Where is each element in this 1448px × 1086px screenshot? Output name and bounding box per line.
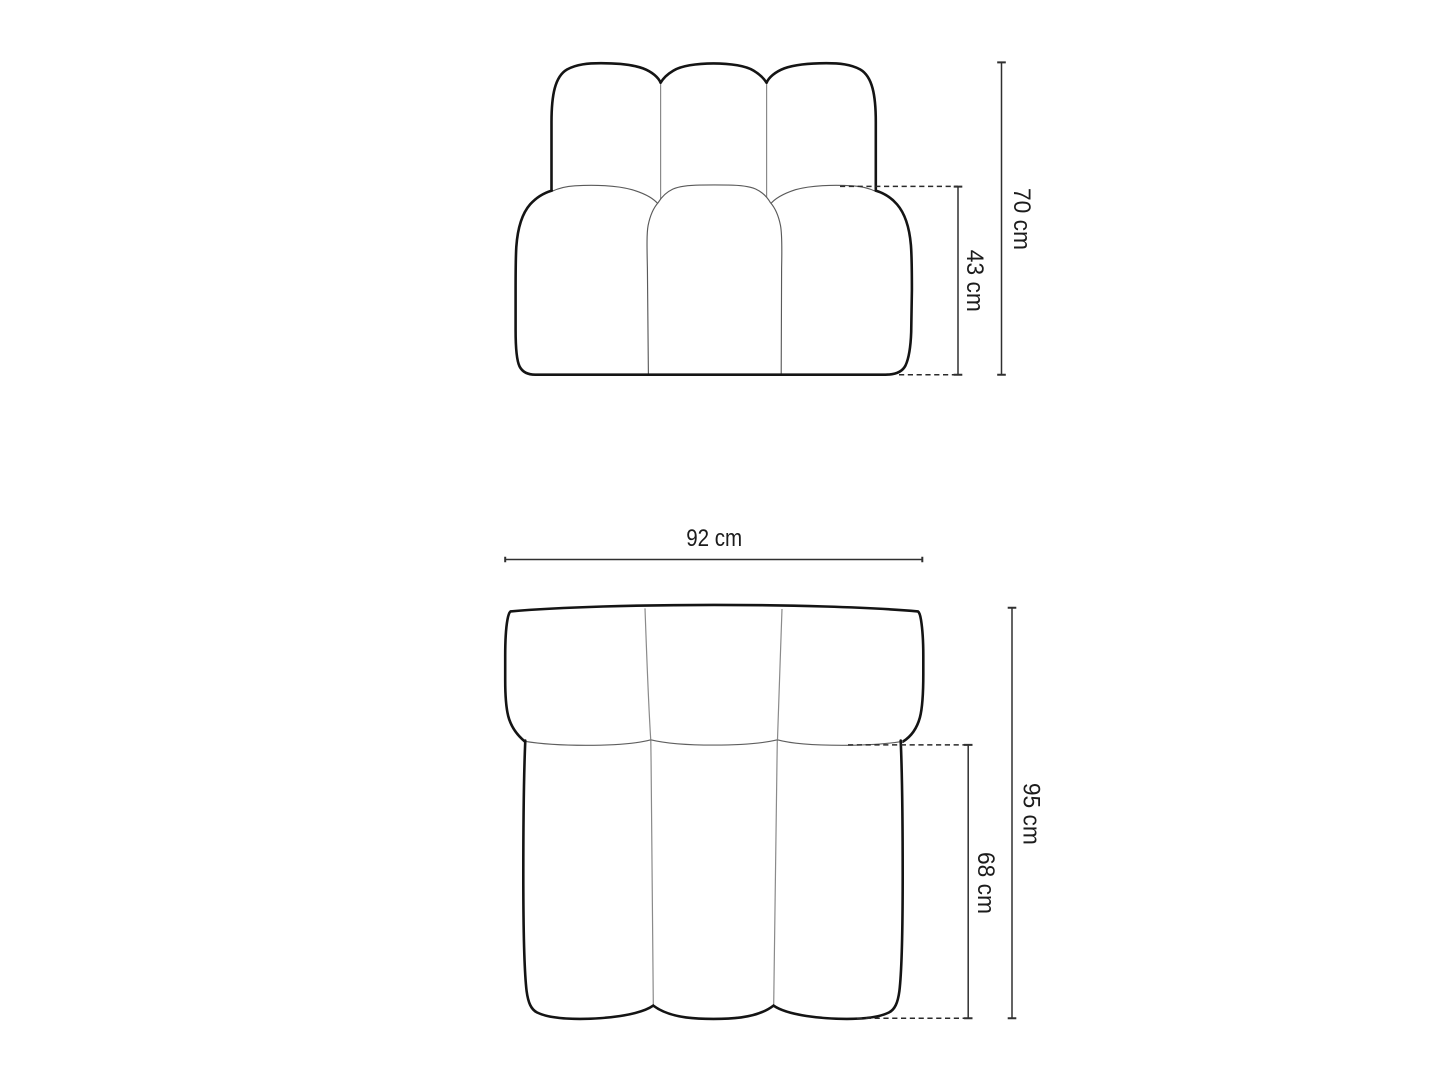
svg-text:92 cm: 92 cm bbox=[686, 525, 742, 552]
svg-text:43 cm: 43 cm bbox=[961, 250, 988, 312]
svg-text:70 cm: 70 cm bbox=[1008, 188, 1035, 250]
svg-text:95 cm: 95 cm bbox=[1018, 783, 1045, 845]
svg-text:68 cm: 68 cm bbox=[972, 852, 999, 914]
